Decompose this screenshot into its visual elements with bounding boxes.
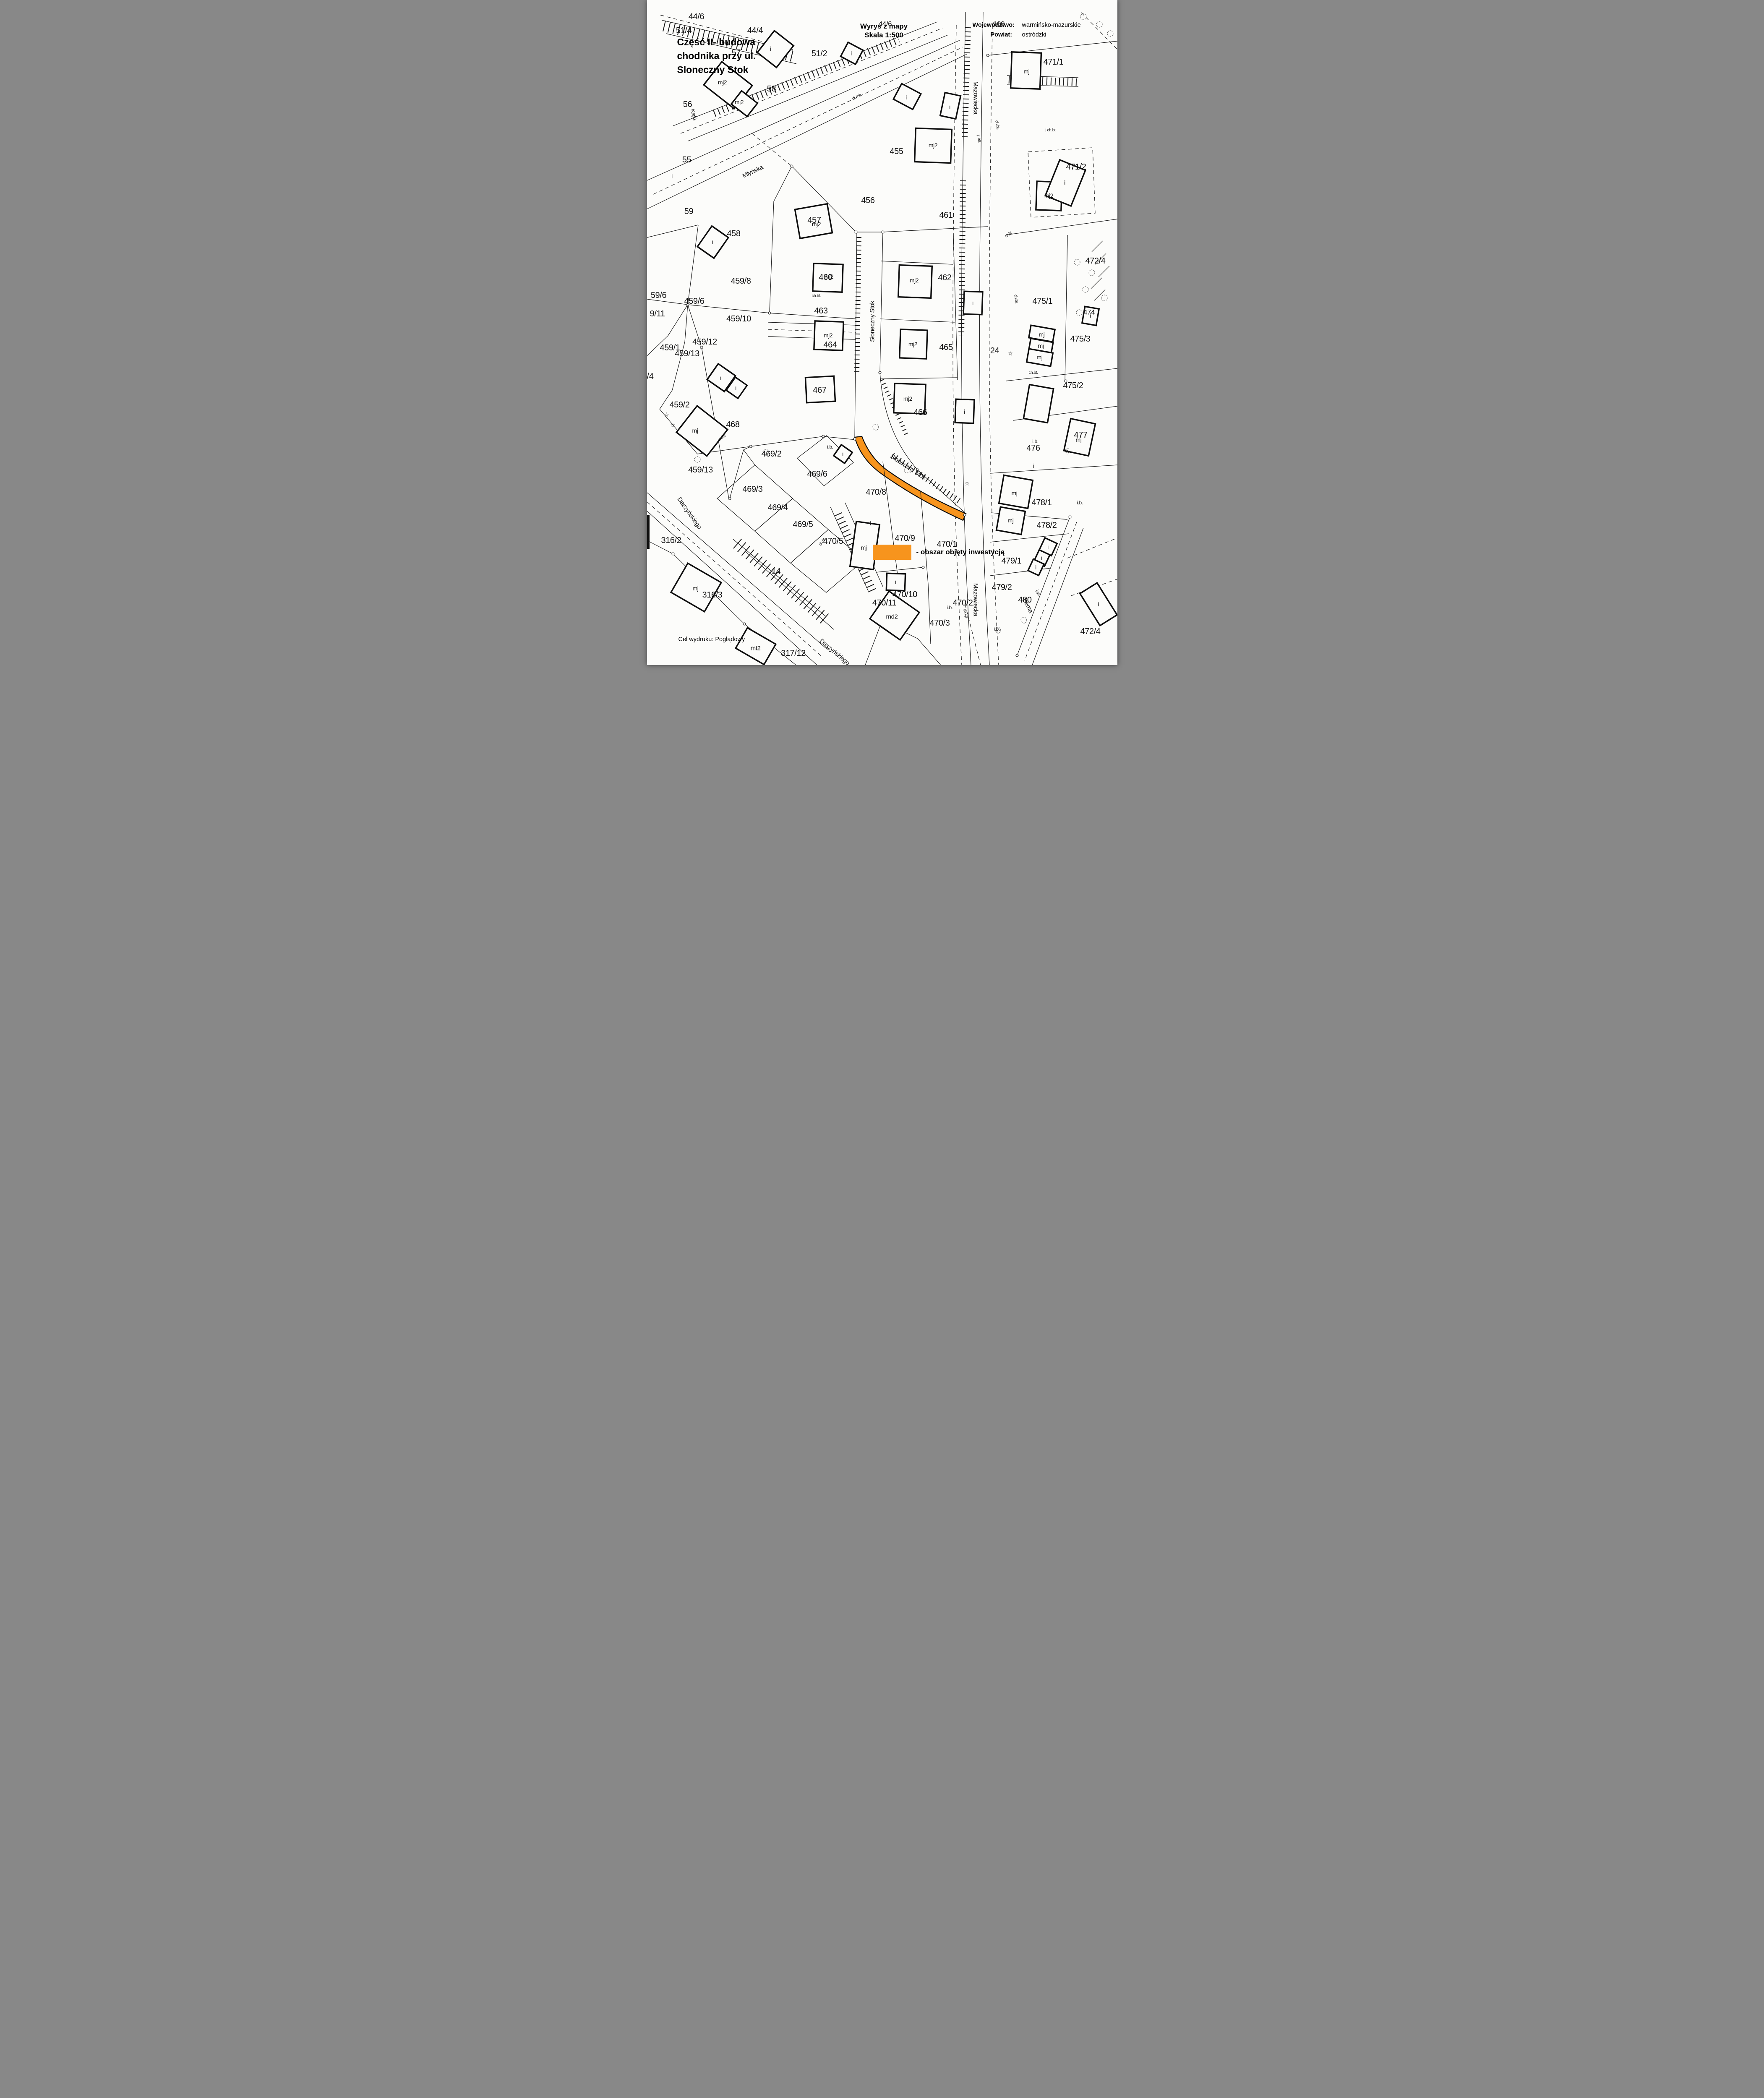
building-code: mj — [1037, 354, 1043, 360]
parcel-number: 472/4 — [1085, 257, 1105, 265]
parcel-number: 466 — [913, 408, 927, 417]
parcel-number: 55 — [682, 156, 691, 164]
parcel-number: 470/2 — [952, 599, 973, 607]
building-code: i — [770, 46, 771, 52]
building-code: mj — [1008, 517, 1014, 523]
parcel-number: 458 — [727, 230, 740, 238]
map-header: Wyrys z mapy Skala 1:500 — [860, 22, 908, 39]
title-block: Część II- budowa chodnika przy ul. Slone… — [677, 35, 756, 77]
legend-swatch — [873, 545, 911, 560]
parcel-number: 317/12 — [781, 649, 806, 658]
region-info: Województwo: warmińsko-mazurskie Powiat:… — [973, 22, 1081, 41]
voivodeship-label: Województwo: — [973, 22, 1022, 29]
parcel-number: 9/11 — [650, 310, 665, 318]
voivodeship-value: warmińsko-mazurskie — [1022, 22, 1081, 29]
parcel-number: 479/2 — [992, 583, 1012, 592]
parcel-number: 474 — [1083, 309, 1095, 316]
parcel-number: /4 — [647, 372, 654, 381]
star-symbol: ☆ — [664, 412, 669, 418]
parcel-number: 455 — [890, 147, 903, 156]
building-code: mj2 — [910, 277, 919, 283]
building-code: i — [712, 239, 713, 245]
building-code: mj — [1039, 331, 1045, 337]
surface-code: ch.kp. — [962, 608, 969, 619]
building-code: i — [1047, 544, 1049, 550]
building-code: mj — [692, 428, 698, 433]
parcel-number: 14 — [772, 567, 780, 576]
building-code: i — [905, 94, 907, 100]
parcel-number: 44/6 — [689, 13, 704, 21]
building-code: i — [972, 300, 973, 306]
building-code: i — [964, 409, 965, 415]
surface-code: ch.bt. — [812, 294, 821, 298]
parcel-number: 469/6 — [807, 470, 827, 478]
surface-code: ch.bt. — [1028, 371, 1038, 375]
building-code: i — [1090, 313, 1091, 318]
legend: - obszar objęty inwestycją — [873, 545, 1005, 560]
parcel-number: 24 — [990, 347, 999, 355]
surface-code: ch.bt. — [717, 433, 727, 442]
building-code: i — [842, 451, 843, 457]
street-name: Słoneczny Stok — [869, 301, 875, 342]
parcel-number: 469/3 — [742, 485, 762, 493]
parcel-number: 463 — [814, 307, 827, 315]
building-code: mj — [693, 585, 699, 591]
building-code: i — [1064, 180, 1065, 185]
parcel-number: 470/8 — [866, 488, 886, 496]
parcel-number: 459/10 — [726, 315, 751, 323]
parcel-number: 56 — [683, 100, 692, 109]
building-code: mj2 — [929, 142, 937, 148]
street-name: Mazowiecka — [972, 81, 979, 115]
street-name: Słoneczny Stok — [889, 453, 926, 481]
legend-caption: - obszar objęty inwestycją — [916, 548, 1005, 556]
building-code: mj — [1076, 437, 1082, 443]
star-symbol: ☆ — [670, 422, 675, 428]
building-code: md2 — [886, 614, 898, 620]
surface-code: dr.mb. — [851, 93, 863, 101]
parcel-number: 44/4 — [747, 26, 763, 35]
building-code: mj2 — [908, 341, 917, 347]
parcel-number: 459/13 — [675, 350, 699, 358]
parcel-number: 459/8 — [731, 277, 751, 285]
building-code: mt2 — [751, 645, 761, 652]
building-code: i — [851, 50, 852, 56]
street-name: Kajki. — [689, 108, 698, 122]
scan-edge-artifact — [647, 515, 650, 549]
building-code: mj2 — [1044, 193, 1053, 198]
surface-code: j.mb. — [976, 135, 981, 144]
parcel-number: 470/10 — [892, 590, 917, 599]
parcel-number: 478/2 — [1036, 521, 1057, 530]
map-sheet: 44/651/444/45751/244/6100585655594584574… — [647, 0, 1117, 665]
parcel-number: 471/2 — [1066, 163, 1086, 171]
building-code: i — [895, 579, 896, 585]
building-code: mj2 — [825, 274, 833, 279]
building-code: i.b. — [1077, 500, 1083, 505]
building-code: i — [671, 173, 673, 179]
map-scale-label: Skala 1:500 — [860, 31, 908, 39]
street-name: Mazowiecka — [972, 583, 979, 616]
parcel-number: 459/6 — [684, 297, 704, 305]
building-code: i — [1098, 601, 1099, 607]
street-name: Bema — [1021, 597, 1034, 614]
parcel-number: 471/1 — [1043, 58, 1063, 66]
parcel-number: 470/3 — [929, 619, 950, 627]
map-labels-layer: 44/651/444/45751/244/6100585655594584574… — [647, 0, 1117, 665]
building-code: i — [870, 520, 871, 526]
parcel-number: 478/1 — [1031, 498, 1052, 507]
parcel-number: 464 — [823, 341, 837, 349]
surface-code: dr.bt. — [1004, 230, 1013, 238]
title-line: chodnika przy ul. — [677, 49, 756, 63]
parcel-number: 462 — [938, 274, 951, 282]
building-code: mj — [1012, 490, 1018, 496]
parcel-number: 469/4 — [767, 504, 788, 512]
building-code: i.b. — [947, 605, 952, 610]
surface-code: ch.bt. — [994, 120, 1000, 130]
county-value: ostródzki — [1022, 31, 1046, 38]
building-code: mj — [1024, 68, 1030, 74]
parcel-number: 475/2 — [1063, 381, 1083, 390]
street-name: Daszyńskiego — [818, 638, 851, 665]
building-code: mj2 — [735, 99, 744, 105]
parcel-number: 468 — [726, 420, 739, 429]
building-code: mj2 — [824, 332, 832, 338]
parcel-number: 316/3 — [702, 591, 722, 599]
parcel-number: 459/2 — [669, 401, 689, 409]
map-extract-label: Wyrys z mapy — [860, 22, 908, 31]
title-line: Sloneczny Stok — [677, 63, 756, 77]
building-code: mj2 — [903, 396, 912, 402]
parcel-number: 58 — [767, 85, 776, 93]
print-purpose: Cel wydruku: Poglądowy — [678, 636, 745, 643]
building-code: i — [1033, 463, 1034, 469]
parcel-number: 51/4 — [676, 26, 692, 35]
parcel-number: 475/1 — [1032, 297, 1052, 305]
parcel-number: 469/2 — [761, 450, 781, 458]
building-code: mj2 — [718, 79, 727, 85]
building-code: mj2 — [812, 221, 821, 227]
street-name: Daszyńskiego — [676, 496, 702, 530]
parcel-number: 456 — [861, 196, 874, 205]
parcel-number: 469/5 — [793, 520, 813, 529]
parcel-number: 59/6 — [651, 291, 666, 300]
building-code: i — [735, 385, 736, 391]
parcel-number: 470/11 — [872, 599, 896, 607]
parcel-number: 470/9 — [895, 534, 915, 543]
building-code: i — [1035, 564, 1036, 570]
surface-code: j.ch.bt. — [1045, 128, 1056, 133]
parcel-number: 316/2 — [661, 536, 681, 545]
parcel-number: 59 — [684, 207, 693, 216]
county-label: Powiat: — [973, 31, 1022, 38]
star-symbol: ☆ — [1007, 350, 1012, 356]
star-symbol: ☆ — [964, 480, 969, 486]
building-code: i — [949, 104, 950, 110]
parcel-number: 472/4 — [1080, 627, 1100, 636]
building-code: i.b. — [827, 444, 833, 449]
building-code: mj — [861, 545, 867, 551]
parcel-number: 51/2 — [812, 50, 827, 58]
building-code: i.b. — [1032, 439, 1038, 444]
building-code: i.b. — [994, 626, 999, 631]
street-name: Młyńska — [741, 164, 764, 179]
parcel-number: 459/13 — [688, 466, 713, 474]
title-line: Część II- budowa — [677, 35, 756, 49]
building-code: i — [720, 375, 721, 381]
parcel-number: 459/12 — [692, 338, 717, 346]
parcel-number: 476 — [1026, 444, 1040, 452]
surface-code: j.gr. — [1034, 589, 1041, 596]
building-code: i — [1041, 555, 1042, 561]
building-code: mj — [1038, 343, 1044, 349]
surface-code: ch.bt. — [1013, 294, 1019, 304]
parcel-number: 467 — [813, 386, 826, 394]
parcel-number: 475/3 — [1070, 335, 1090, 343]
parcel-number: 465 — [939, 343, 952, 352]
surface-code: j.gr. — [1064, 448, 1070, 455]
parcel-number: 461 — [939, 211, 952, 219]
